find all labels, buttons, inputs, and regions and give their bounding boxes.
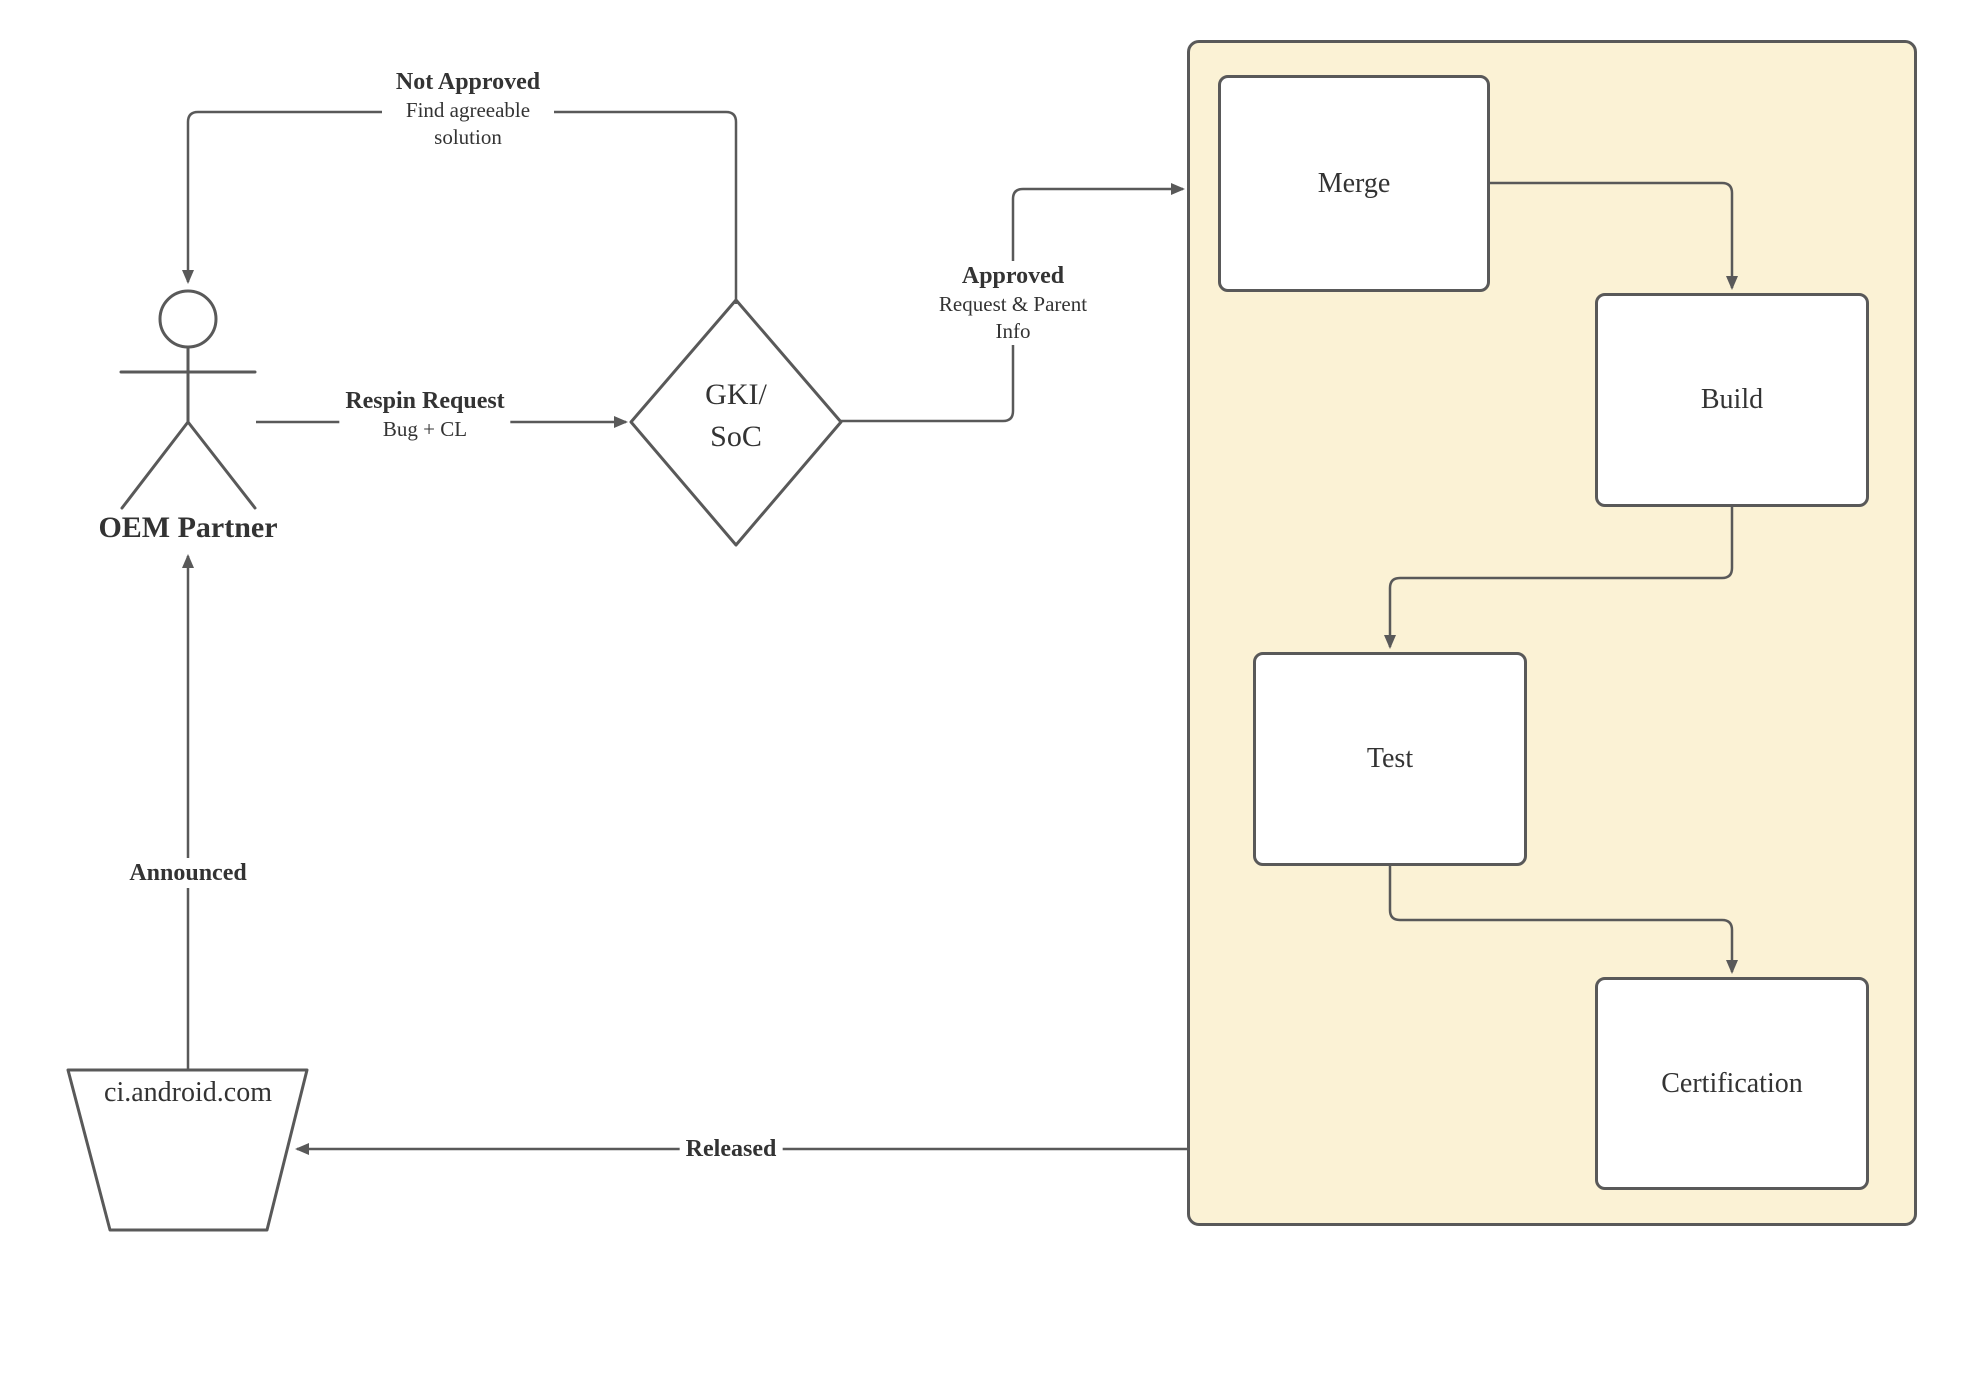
actor-head-icon — [160, 291, 216, 347]
decision-label: GKI/ SoC — [705, 374, 767, 458]
decision-label-line1: GKI/ — [705, 374, 767, 416]
edge-label-respin-request: Respin Request Bug + CL — [339, 386, 510, 443]
actor-legs — [122, 422, 255, 508]
actor-label: OEM Partner — [92, 511, 283, 545]
node-test: Test — [1253, 652, 1527, 866]
decision-label-line2: SoC — [705, 416, 767, 458]
edge-label-approved-subtitle: Request & Parent Info — [923, 291, 1103, 345]
node-certification: Certification — [1595, 977, 1869, 1190]
edge-label-approved: Approved Request & Parent Info — [917, 261, 1109, 345]
edge-label-not-approved-subtitle: Find agreeable solution — [388, 97, 548, 151]
edge-label-approved-title: Approved — [923, 261, 1103, 291]
flow-diagram-canvas: Merge Build Test Certification GKI/ SoC … — [0, 0, 1966, 1383]
edge-label-respin-request-subtitle: Bug + CL — [345, 416, 504, 443]
edge-label-not-approved-title: Not Approved — [388, 67, 548, 97]
node-build: Build — [1595, 293, 1869, 507]
edge-label-respin-request-title: Respin Request — [345, 386, 504, 416]
edge-label-released: Released — [680, 1134, 783, 1164]
test-to-certification-connector — [1390, 866, 1732, 972]
edge-label-not-approved: Not Approved Find agreeable solution — [382, 67, 554, 151]
actor-figure — [121, 291, 255, 508]
datastore-label: ci.android.com — [104, 1076, 272, 1110]
edge-label-announced: Announced — [123, 858, 252, 888]
node-merge: Merge — [1218, 75, 1490, 292]
build-to-test-connector — [1390, 507, 1732, 647]
merge-to-build-connector — [1490, 183, 1732, 288]
